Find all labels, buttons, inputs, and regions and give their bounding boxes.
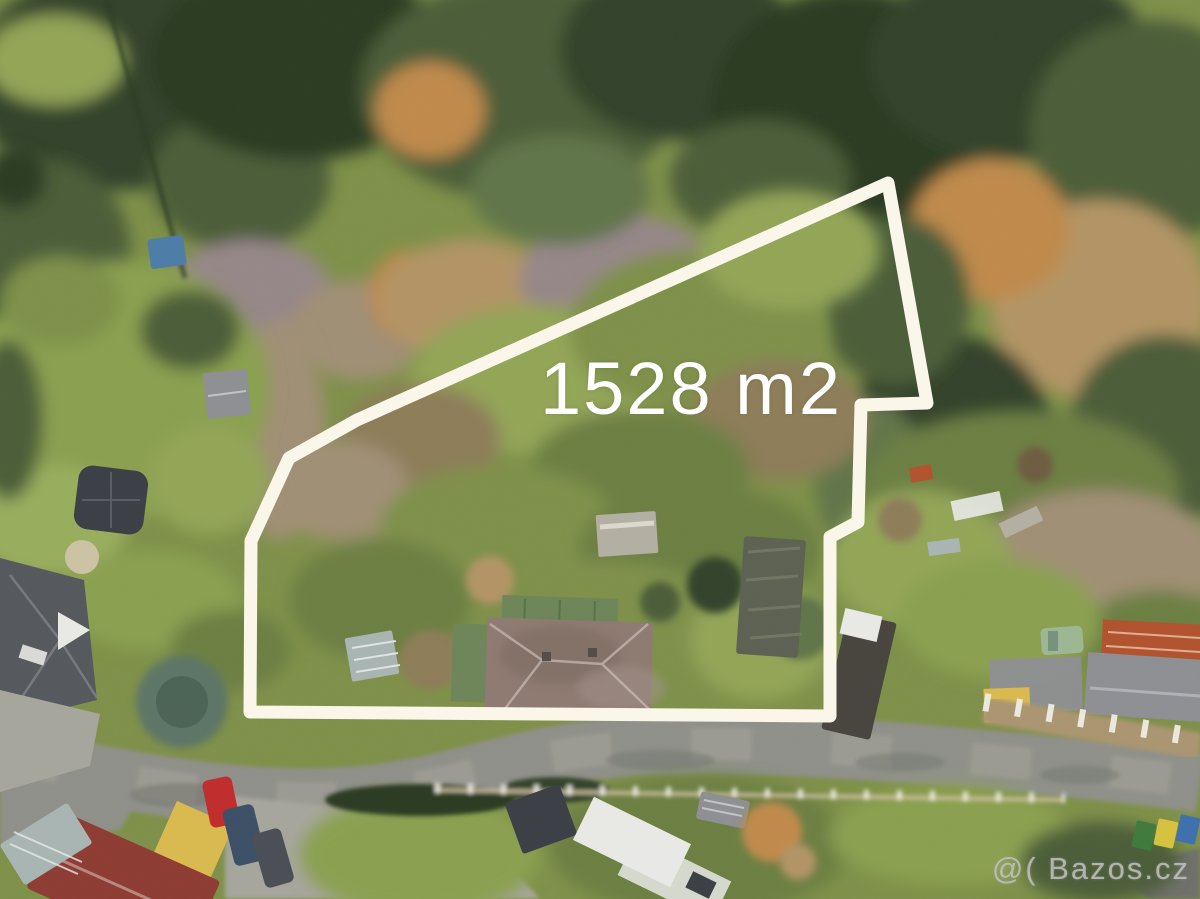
plot-area-label: 1528 m2	[540, 352, 842, 426]
photo-grain	[0, 0, 1200, 899]
aerial-photo: 1528 m2 @( Bazos.cz	[0, 0, 1200, 899]
photo-scene	[0, 0, 1200, 899]
bazos-watermark: @( Bazos.cz	[992, 851, 1190, 887]
